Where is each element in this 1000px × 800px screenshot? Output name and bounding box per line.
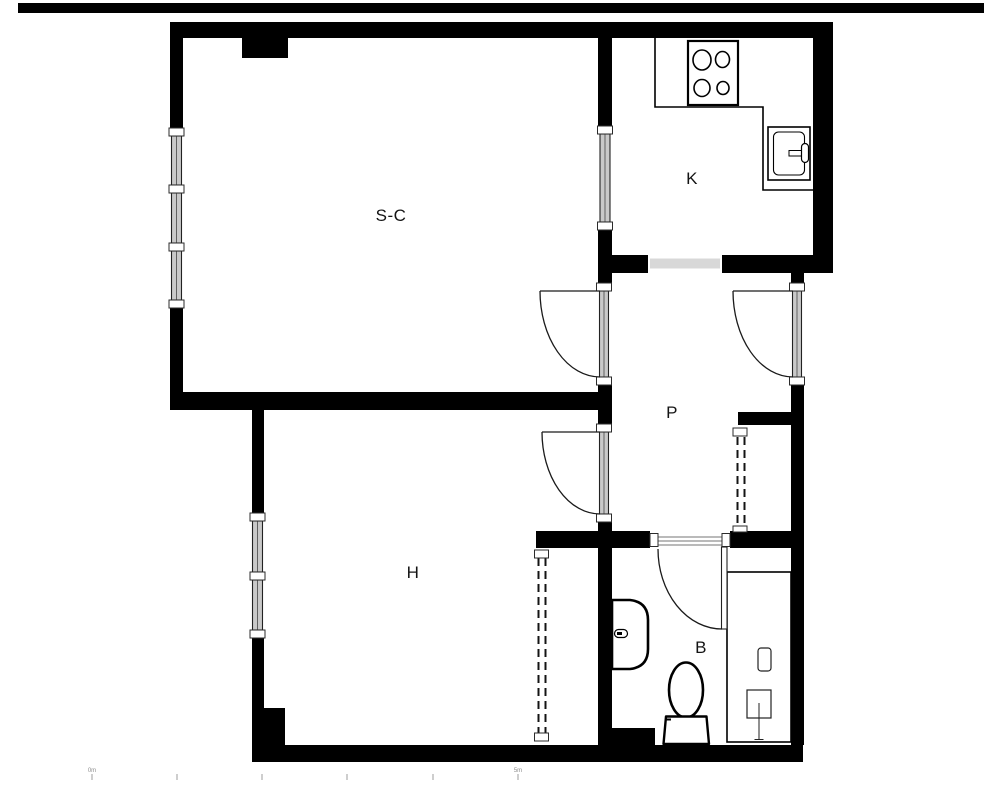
door-bedroom [542,424,612,522]
wardrobe-cap [535,550,549,558]
wall-segment [170,22,183,128]
wall-segment [170,308,183,392]
kitchen-sink [768,127,810,180]
wall-segment [170,392,610,410]
wall-segment [536,531,650,548]
door-living [540,283,612,385]
wall-segment [813,22,833,273]
wardrobe-cap [535,733,549,741]
room-label-bedroom: H [407,563,420,582]
toilet [664,663,710,745]
window-living-left [169,128,184,308]
door-swing-arc [540,291,600,377]
bathtub [727,572,791,742]
wall-segment [252,745,803,762]
wall-segment [170,22,833,38]
faucet-icon [802,144,809,163]
wall-segment [612,728,655,745]
wall-segment [598,522,612,745]
scale-end-label: 5m [514,768,522,774]
wardrobe-cap [733,428,747,436]
wall-segment [598,255,648,273]
top-border-rule [18,3,984,13]
door-swing-arc [658,549,722,629]
door-swing-arc [542,432,600,514]
wall-segment [791,273,804,283]
wall-segment [598,385,612,424]
washbasin [612,600,648,669]
wall-segment [598,230,612,255]
wall-segment [791,385,804,412]
door-bathroom [658,547,727,629]
room-label-kitchen: K [686,169,698,188]
door-entrance [733,283,805,385]
floor-plan-page: S-C K P H B 0m 5m [0,0,1000,800]
wall-segment [252,410,264,513]
room-label-hallway: P [666,403,678,422]
bathroom-opening-threshold [650,534,730,547]
wall-segment [252,708,285,745]
faucet-icon [617,632,622,635]
wardrobe-bedroom [539,558,546,733]
chimney-block [242,38,288,58]
wall-segment [738,412,804,425]
wardrobe-cap [733,526,747,532]
wall-segment [598,273,612,283]
kitchen-opening-threshold [648,255,722,273]
scale-start-label: 0m [88,768,96,774]
floor-plan-drawing: S-C K P H B 0m 5m [0,0,1000,800]
door-swing-arc [733,291,793,377]
wall-segment [598,38,612,126]
wardrobe-hall [738,437,745,527]
soap-tray [758,648,771,671]
window-kitchen-partition [598,126,613,230]
wall-segment [791,425,804,745]
room-label-living: S-C [376,206,407,225]
wall-segment [730,531,804,548]
stove [688,41,738,105]
room-label-bathroom: B [695,638,707,657]
window-bedroom-left [250,513,265,638]
wall-segment [722,255,833,273]
scale-bar [92,774,518,780]
toilet-tank [664,717,710,745]
